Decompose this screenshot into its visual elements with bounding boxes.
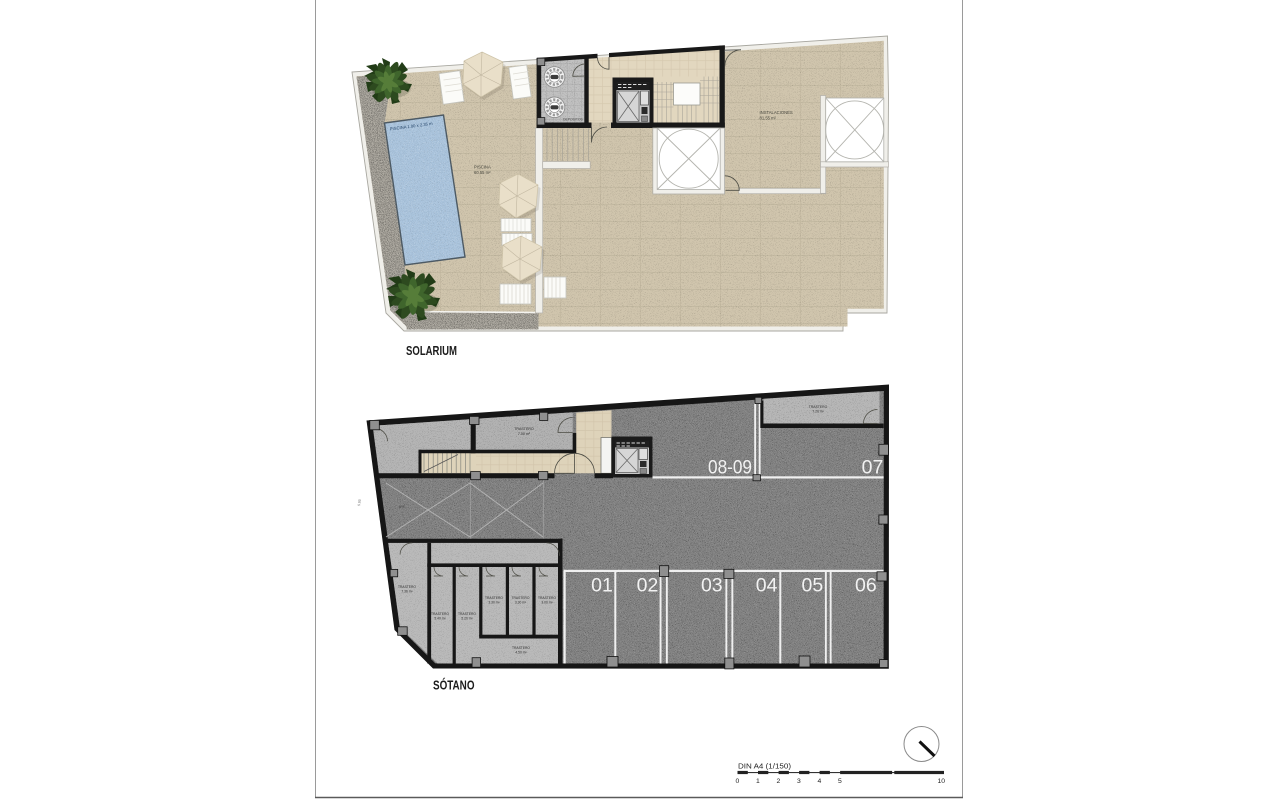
svg-text:DIN A4 (1/150): DIN A4 (1/150): [738, 762, 791, 771]
svg-text:TRASTERO: TRASTERO: [809, 405, 828, 409]
svg-text:3: 3: [797, 778, 801, 785]
svg-text:TRASTERO: TRASTERO: [458, 612, 476, 616]
svg-text:07: 07: [862, 457, 884, 479]
svg-text:5.40 m²: 5.40 m²: [434, 616, 446, 620]
svg-text:7.36 m²: 7.36 m²: [401, 589, 413, 593]
svg-text:3.30 m²: 3.30 m²: [488, 600, 500, 604]
svg-text:04: 04: [756, 574, 778, 596]
svg-text:TRASTERO: TRASTERO: [398, 585, 416, 589]
svg-text:6%: 6%: [399, 505, 405, 509]
svg-text:3.00 m²: 3.00 m²: [541, 600, 553, 604]
svg-text:03: 03: [701, 574, 723, 596]
svg-text:SÓTANO: SÓTANO: [433, 678, 475, 693]
svg-text:TRASTERO: TRASTERO: [512, 596, 530, 600]
svg-text:SOLARIUM: SOLARIUM: [406, 343, 457, 358]
svg-text:TRASTERO: TRASTERO: [512, 646, 530, 650]
svg-text:DEPOSITOS: DEPOSITOS: [563, 118, 583, 122]
svg-text:TRASTERO: TRASTERO: [514, 427, 534, 431]
svg-text:1: 1: [756, 778, 760, 785]
svg-text:5: 5: [838, 778, 842, 785]
svg-text:4.98: 4.98: [546, 481, 553, 485]
svg-text:4: 4: [818, 778, 822, 785]
svg-text:5.20 m²: 5.20 m²: [461, 616, 473, 620]
svg-text:4.20: 4.20: [455, 481, 462, 485]
svg-text:60.55 m²: 60.55 m²: [474, 170, 491, 175]
svg-text:0: 0: [736, 778, 740, 785]
svg-text:TRASTERO: TRASTERO: [538, 596, 556, 600]
svg-text:TRASTERO: TRASTERO: [485, 596, 503, 600]
svg-text:PISCINA: PISCINA: [474, 165, 491, 170]
svg-text:4.50 m²: 4.50 m²: [515, 650, 527, 654]
svg-text:7.20 m²: 7.20 m²: [812, 410, 824, 414]
svg-text:81.55 m²: 81.55 m²: [760, 116, 777, 121]
svg-text:08-09: 08-09: [708, 457, 752, 479]
svg-text:06: 06: [855, 574, 877, 596]
svg-text:01: 01: [591, 574, 613, 596]
svg-text:10: 10: [938, 778, 946, 785]
svg-text:TRASTERO: TRASTERO: [431, 612, 449, 616]
svg-text:2: 2: [777, 778, 781, 785]
svg-text:05: 05: [802, 574, 824, 596]
svg-text:7.00 m²: 7.00 m²: [518, 432, 531, 436]
svg-text:INSTALACIONES: INSTALACIONES: [760, 110, 793, 115]
svg-text:02: 02: [637, 574, 659, 596]
svg-text:3.30 m²: 3.30 m²: [515, 600, 527, 604]
